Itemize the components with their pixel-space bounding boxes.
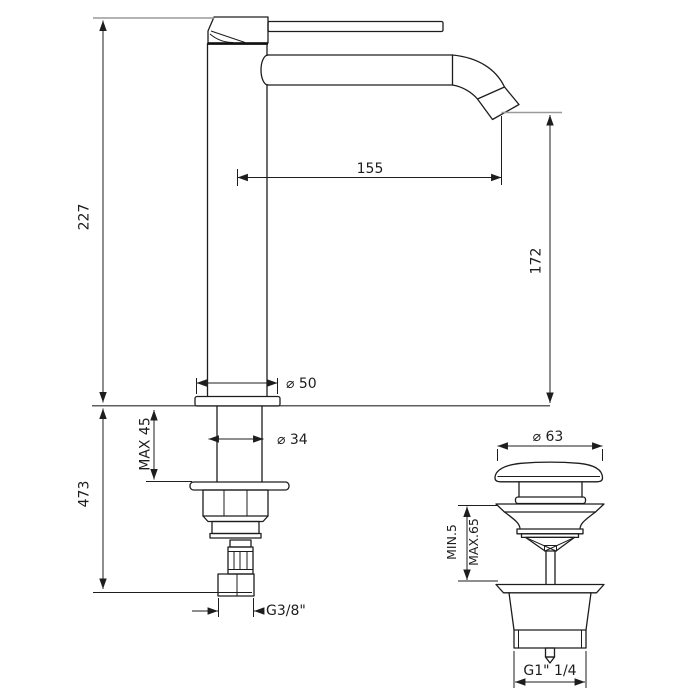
faucet-technical-drawing: 227 473 MAX 45 ⌀ 50 ⌀ 34 155 172 G3/8": [0, 0, 700, 700]
supply-hose: [218, 540, 254, 596]
drain-cap: [495, 462, 603, 482]
dim-label-d50: ⌀ 50: [286, 376, 317, 392]
dim-label-473: 473: [77, 481, 93, 508]
drain-upper-body: [496, 504, 604, 585]
aerator: [478, 87, 520, 120]
faucet-base-flange: [195, 397, 280, 407]
dim-diameter-63: ⌀ 63: [498, 429, 603, 461]
dim-height-172: 172: [502, 113, 563, 404]
dim-height-227: 227: [77, 18, 215, 403]
dim-label-227: 227: [77, 204, 93, 231]
mounting-nut: [203, 490, 268, 538]
dim-label-min5: MIN.5: [444, 524, 459, 560]
technical-drawing-sheet: 227 473 MAX 45 ⌀ 50 ⌀ 34 155 172 G3/8": [0, 0, 700, 700]
drain-lower-body: [509, 593, 591, 663]
dim-height-473: 473: [77, 409, 253, 593]
handle-lever: [268, 22, 443, 32]
faucet-shank: [190, 407, 289, 491]
dim-min-max-deck: MIN.5 MAX.65: [444, 506, 498, 582]
dim-diameter-34: ⌀ 34: [209, 432, 308, 448]
dim-label-g114: G1" 1/4: [523, 663, 576, 679]
washer-plate: [190, 482, 289, 490]
drain-neck: [516, 482, 586, 504]
faucet-body: [208, 44, 268, 397]
dim-label-155: 155: [357, 161, 384, 177]
drain-flange: [496, 585, 604, 593]
faucet-handle: [208, 17, 443, 44]
drain-thread: [514, 630, 586, 648]
drain-pin: [546, 648, 555, 657]
dim-thread-g38: G3/8": [192, 598, 306, 619]
dim-label-max45: MAX 45: [138, 417, 154, 471]
dim-label-d34: ⌀ 34: [277, 432, 308, 448]
dim-label-172: 172: [529, 248, 545, 275]
dim-max-45: MAX 45: [138, 410, 193, 482]
dim-label-g38: G3/8": [266, 603, 306, 619]
dim-label-d63: ⌀ 63: [533, 429, 564, 445]
dim-label-max65: MAX.65: [466, 518, 481, 566]
dim-reach-155: 155: [238, 116, 502, 186]
faucet-spout: [261, 55, 519, 120]
dim-diameter-50: ⌀ 50: [197, 376, 317, 394]
